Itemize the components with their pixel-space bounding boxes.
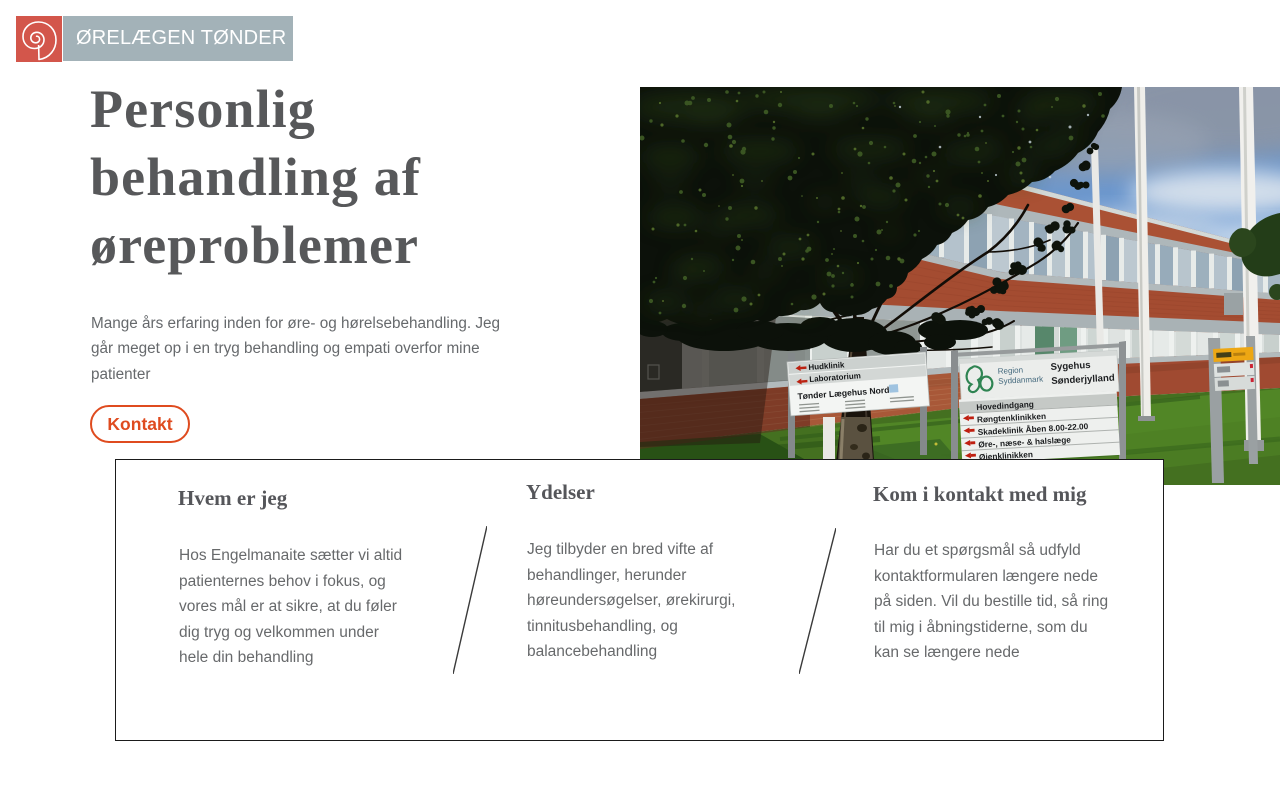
svg-text:Region: Region (997, 366, 1023, 376)
svg-text:Sygehus: Sygehus (1050, 360, 1091, 373)
